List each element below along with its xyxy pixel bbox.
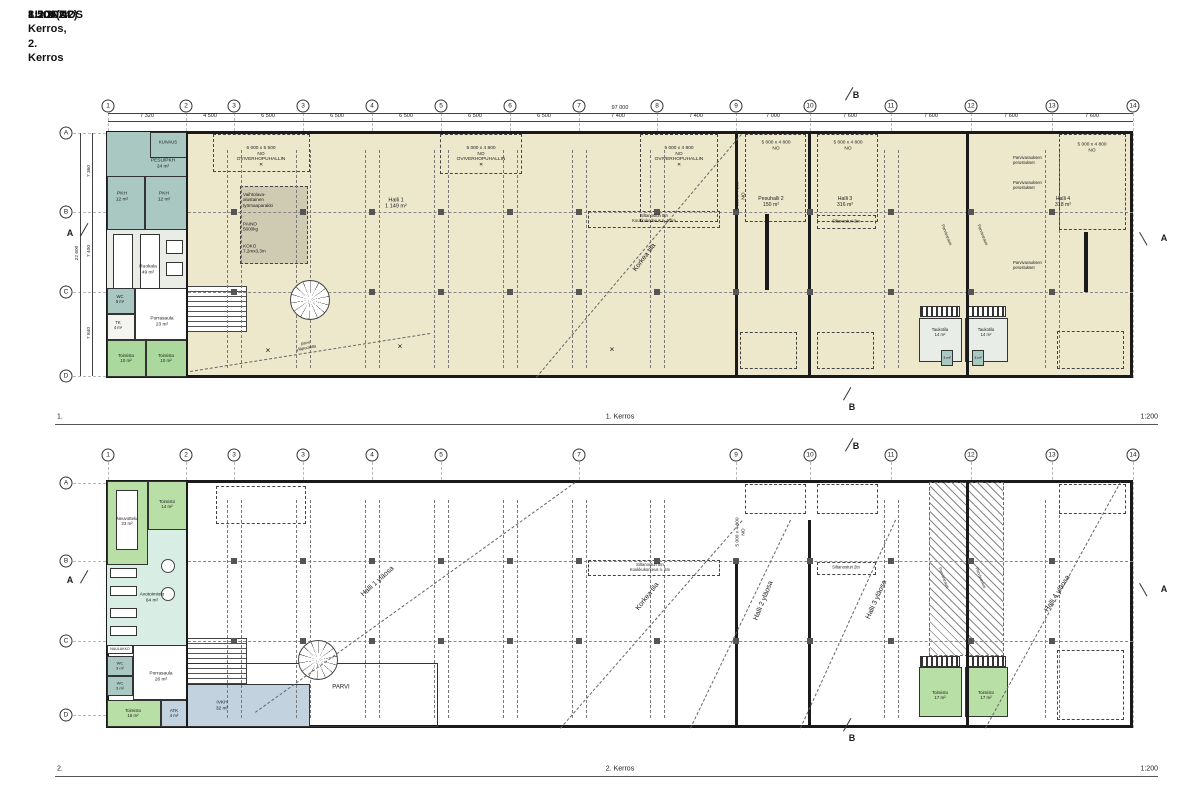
footing-strip-line	[503, 150, 504, 368]
column-mark	[807, 289, 813, 295]
column-mark	[507, 558, 513, 564]
column-mark	[968, 289, 974, 295]
annotation-label: IVKH 32 m²	[216, 700, 228, 711]
grid-bubble: B	[60, 555, 73, 568]
room-fill	[166, 262, 183, 276]
grid-bubble: 7	[573, 449, 586, 462]
column-mark	[576, 638, 582, 644]
grid-bubble: 10	[804, 449, 817, 462]
annotation-label: Taukotila 14 m²	[932, 328, 949, 338]
column-mark	[369, 209, 375, 215]
column-mark	[1049, 209, 1055, 215]
annotation-label: Halli 3 316 m²	[837, 197, 853, 209]
footing-strip-line	[517, 150, 518, 368]
annotation-label: PKH 12 m²	[158, 191, 170, 202]
column-mark	[369, 638, 375, 644]
grid-bubble: 3	[228, 100, 241, 113]
column-mark	[888, 638, 894, 644]
column-mark	[1049, 638, 1055, 644]
grid-line-horizontal-stem	[73, 715, 106, 716]
bench-hatch	[966, 306, 1006, 317]
annotation-label: 3 m²	[974, 356, 982, 360]
reference-line	[108, 121, 1133, 122]
grid-line-horizontal-stem	[73, 561, 106, 562]
grid-bubble: 4	[366, 100, 379, 113]
dimension-label: 7 400	[689, 113, 703, 119]
column-mark	[438, 558, 444, 564]
column-mark	[231, 209, 237, 215]
wall	[735, 560, 738, 728]
section-mark-label: A	[67, 575, 74, 585]
annotation-label: PARVI	[332, 685, 349, 692]
grid-bubble: 3	[297, 100, 310, 113]
column-mark	[438, 289, 444, 295]
column-mark	[888, 289, 894, 295]
grid-bubble: 8	[651, 100, 664, 113]
grid-bubble: 3	[297, 449, 310, 462]
bench-hatch	[966, 656, 1006, 667]
room-fill	[107, 176, 145, 230]
column-mark	[968, 209, 974, 215]
cross-mark: ✕	[265, 347, 270, 354]
dashed-opening-box	[1057, 331, 1124, 369]
cross-mark: ✕	[397, 343, 402, 350]
grid-bubble: 1	[102, 449, 115, 462]
spiral-stair	[298, 640, 338, 680]
grid-line-vertical	[1133, 462, 1134, 728]
wall	[808, 131, 811, 378]
column-mark	[576, 289, 582, 295]
grid-bubble: 2	[180, 449, 193, 462]
dashed-opening-box	[740, 332, 797, 369]
column-mark	[231, 558, 237, 564]
column-mark	[507, 209, 513, 215]
column-mark	[888, 558, 894, 564]
annotation-label: 5 000 x 4 800 NO	[761, 140, 790, 151]
cross-mark: ✕	[609, 346, 614, 353]
annotation-label: Toimisto 16 m²	[125, 708, 141, 718]
section-mark-flag	[80, 570, 88, 583]
footing-strip-line	[365, 150, 366, 368]
annotation-label: 5 000 x 4 800 NO	[735, 517, 746, 546]
column-mark	[438, 209, 444, 215]
grid-bubble: 12	[965, 100, 978, 113]
caption-rule	[55, 424, 1158, 425]
wall	[186, 131, 188, 378]
annotation-label: 5 000 x 4 800 NO	[735, 181, 746, 210]
annotation-label: Neuvottelu 23 m²	[117, 516, 138, 526]
grid-bubble: 11	[885, 100, 898, 113]
grid-line-horizontal-stem	[73, 212, 106, 213]
annotation-label: Halli 1 1 149 m²	[385, 198, 407, 211]
column-mark	[807, 209, 813, 215]
grid-bubble: 2	[180, 100, 193, 113]
section-mark-label: B	[853, 90, 860, 100]
column-mark	[576, 558, 582, 564]
annotation-label: PKH 12 m²	[116, 191, 128, 202]
footing-strip-line	[310, 150, 311, 368]
grid-line-horizontal-stem	[73, 133, 106, 134]
grid-bubble: 6	[504, 100, 517, 113]
footing-strip-line	[650, 500, 651, 718]
wall	[186, 480, 188, 728]
grid-bubble: D	[60, 709, 73, 722]
bench-hatch	[920, 656, 960, 667]
annotation-label: Siltanosturi 2tn	[832, 566, 860, 571]
column-mark	[1049, 289, 1055, 295]
dimension-label: 97 000	[612, 105, 629, 111]
footing-strip-line	[586, 500, 587, 718]
grid-bubble: 5	[435, 100, 448, 113]
footing-strip-line	[296, 150, 297, 368]
room-fill	[110, 626, 137, 636]
dashed-opening-box	[817, 332, 874, 369]
column-mark	[507, 638, 513, 644]
column-mark	[231, 638, 237, 644]
footing-strip-line	[898, 150, 899, 368]
annotation-label: Ruokala 49 m²	[139, 264, 157, 275]
spiral-stair	[290, 280, 330, 320]
caption-scale: 1:200	[1140, 766, 1158, 773]
annotation-label: 22 600	[75, 246, 81, 261]
footing-strip-line	[884, 150, 885, 368]
grid-bubble: B	[60, 206, 73, 219]
annotation-label: 5 000 x 4 800 NO	[833, 140, 862, 151]
footing-strip-line	[241, 150, 242, 368]
column-mark	[807, 558, 813, 564]
dimension-label: 4 500	[203, 113, 217, 119]
annotation-label: Pesuhalli 2 150 m²	[758, 197, 783, 209]
grid-bubble: 1	[102, 100, 115, 113]
annotation-label: Porrasaula 23 m²	[150, 316, 173, 327]
footing-strip-line	[448, 500, 449, 718]
wall	[966, 480, 969, 728]
dimension-label: 6 500	[468, 113, 482, 119]
room-fill	[113, 234, 133, 290]
annotation-label: KUIVAUS	[159, 141, 177, 146]
dashed-opening-box	[1057, 650, 1124, 720]
annotation-label: Parvivarauksen perustukset	[1013, 181, 1042, 191]
dimension-label: 7 000	[766, 113, 780, 119]
footing-strip-line	[434, 150, 435, 368]
caption-rule	[55, 776, 1158, 777]
annotation-label: Toimisto 10 m²	[118, 353, 134, 363]
grid-bubble: 7	[573, 100, 586, 113]
room-fill	[140, 234, 160, 290]
section-mark-label: B	[853, 441, 860, 451]
annotation-label: Halli 4 318 m²	[1055, 197, 1071, 209]
dimension-label: 7 600	[1085, 113, 1099, 119]
annotation-label: ATK 4 m²	[170, 708, 179, 718]
grid-line-horizontal-stem	[73, 641, 106, 642]
room-fill	[166, 240, 183, 254]
wall	[765, 214, 769, 290]
grid-line-vertical	[1133, 113, 1134, 378]
section-mark-flag	[1139, 232, 1147, 245]
dashed-opening-box	[817, 484, 878, 514]
grid-bubble: 14	[1127, 100, 1140, 113]
annotation-label: Toimisto 10 m²	[158, 353, 174, 363]
annotation-label: 5 000 x 4 800 NO OVIVERHOPUHALLIN ✕	[655, 146, 704, 168]
column-mark	[733, 289, 739, 295]
annotation-label: NAULAKKO	[110, 647, 130, 651]
grid-bubble: 13	[1046, 449, 1059, 462]
dimension-label: 6 500	[330, 113, 344, 119]
caption-title: 1. Kerros	[606, 414, 634, 421]
grid-bubble: 10	[804, 100, 817, 113]
drawing-date: 8.5.2024	[28, 8, 71, 22]
annotation-label: Toimisto 17 m²	[978, 690, 994, 700]
dimension-label: 7 400	[611, 113, 625, 119]
section-mark-label: A	[1161, 584, 1168, 594]
annotation-label: Vaihtolava- alustainen työmaaparakki	[243, 192, 273, 208]
column-mark	[968, 638, 974, 644]
section-mark-flag	[1139, 583, 1147, 596]
footing-strip-line	[1045, 150, 1046, 368]
wall	[966, 131, 969, 378]
caption-number: 1.	[57, 414, 63, 421]
annotation-label: PESU/PKH 24 m²	[151, 158, 175, 169]
dashed-opening-box	[745, 484, 806, 514]
column-mark	[231, 289, 237, 295]
footing-strip-line	[572, 500, 573, 718]
column-mark	[300, 209, 306, 215]
room-fill	[110, 586, 137, 596]
round-table	[161, 559, 175, 573]
annotation-label: Taukotila 14 m²	[978, 328, 995, 338]
annotation-label: Porrasaula 26 m²	[149, 671, 172, 682]
room-fill	[110, 608, 137, 618]
annotation-label: WC 3 m²	[116, 681, 124, 690]
footing-strip-line	[586, 150, 587, 368]
drawing-canvas: LUONNOS 1. Kerros, 2. Kerros 1:200(A2) 8…	[0, 0, 1200, 793]
annotation-label: 6 000 x 5 500 NO OVIVERHOPUHALLIN ✕	[237, 146, 286, 168]
caption-scale: 1:200	[1140, 414, 1158, 421]
column-mark	[369, 289, 375, 295]
grid-bubble: A	[60, 477, 73, 490]
grid-bubble: 11	[885, 449, 898, 462]
column-mark	[733, 558, 739, 564]
footing-strip-line	[448, 150, 449, 368]
bench-hatch	[920, 306, 960, 317]
grid-bubble: 3	[228, 449, 241, 462]
grid-bubble: D	[60, 370, 73, 383]
column-mark	[438, 638, 444, 644]
grid-bubble: 9	[730, 100, 743, 113]
annotation-label: WC 5 m²	[116, 295, 124, 305]
column-mark	[300, 558, 306, 564]
column-mark	[968, 558, 974, 564]
column-mark	[654, 638, 660, 644]
section-mark-flag	[843, 387, 851, 400]
dimension-label: 7 600	[1004, 113, 1018, 119]
section-mark-label: A	[67, 228, 74, 238]
room-fill	[145, 176, 187, 230]
annotation-label: PAINO 5600kg	[243, 222, 258, 233]
grid-line-horizontal-stem	[73, 292, 106, 293]
footing-strip-line	[884, 500, 885, 718]
annotation-label: 5 000 x 4 800 NO OVIVERHOPUHALLIN ✕	[457, 146, 506, 168]
section-mark-label: A	[1161, 233, 1168, 243]
column-mark	[507, 289, 513, 295]
annotation-label: Parvivarauksen perustukset	[1013, 156, 1042, 166]
annotation-label: KOKO 7,2mx3,3m	[243, 244, 266, 255]
grid-bubble: C	[60, 635, 73, 648]
column-mark	[654, 289, 660, 295]
annotation-label: TK 4 m²	[114, 321, 122, 331]
column-mark	[888, 209, 894, 215]
wall	[808, 520, 811, 728]
dimension-label: 6 500	[537, 113, 551, 119]
grid-bubble: A	[60, 127, 73, 140]
section-mark-flag	[80, 223, 88, 236]
dashed-opening-box	[216, 486, 306, 524]
annotation-label: WC 3 m²	[116, 661, 124, 670]
annotation-label: 7 840	[87, 327, 93, 339]
footing-strip-line	[227, 150, 228, 368]
grid-bubble: 13	[1046, 100, 1059, 113]
room-fill	[135, 288, 187, 340]
annotation-label: Parvivarauksen perustukset	[1013, 261, 1042, 271]
dimension-label: 6 500	[399, 113, 413, 119]
wall	[1084, 232, 1088, 292]
annotation-label: 7 360	[87, 165, 93, 177]
grid-bubble: 12	[965, 449, 978, 462]
annotation-label: 3 m²	[943, 356, 951, 360]
column-mark	[576, 209, 582, 215]
caption-number: 2.	[57, 766, 63, 773]
footing-strip-line	[517, 500, 518, 718]
room-fill	[110, 568, 137, 578]
grid-bubble: 4	[366, 449, 379, 462]
reference-line	[188, 641, 1133, 642]
caption-title: 2. Kerros	[606, 766, 634, 773]
grid-line-horizontal-stem	[73, 483, 106, 484]
section-mark-label: B	[849, 402, 856, 412]
footing-strip-line	[898, 500, 899, 718]
annotation-label: Siltanosturi 5tn Koukkukorkeus n. 6m	[630, 563, 670, 573]
annotation-label: Siltanosturi 5tn Koukkukorkeus n. 6,5m	[632, 214, 676, 224]
annotation-label: Siltanosturi 2tn	[832, 220, 860, 225]
annotation-label: Avotoimisto 64 m²	[140, 592, 165, 603]
annotation-label: Toimisto 14 m²	[159, 499, 175, 509]
column-mark	[807, 638, 813, 644]
wall	[735, 131, 738, 378]
section-mark-label: B	[849, 733, 856, 743]
column-mark	[369, 558, 375, 564]
grid-bubble: 14	[1127, 449, 1140, 462]
dimension-label: 7 600	[843, 113, 857, 119]
dimension-label: 7 600	[924, 113, 938, 119]
dimension-label: 7 320	[140, 113, 154, 119]
annotation-label: 7 400	[87, 245, 93, 257]
footing-strip-line	[379, 150, 380, 368]
dimension-label: 6 500	[261, 113, 275, 119]
grid-bubble: 5	[435, 449, 448, 462]
annotation-label: Toimisto 17 m²	[932, 690, 948, 700]
annotation-label: 5 000 x 4 800 NO	[1077, 142, 1106, 153]
grid-bubble: C	[60, 286, 73, 299]
grid-line-horizontal-stem	[73, 376, 106, 377]
reference-line	[188, 292, 1133, 293]
grid-bubble: 9	[730, 449, 743, 462]
column-mark	[1049, 558, 1055, 564]
